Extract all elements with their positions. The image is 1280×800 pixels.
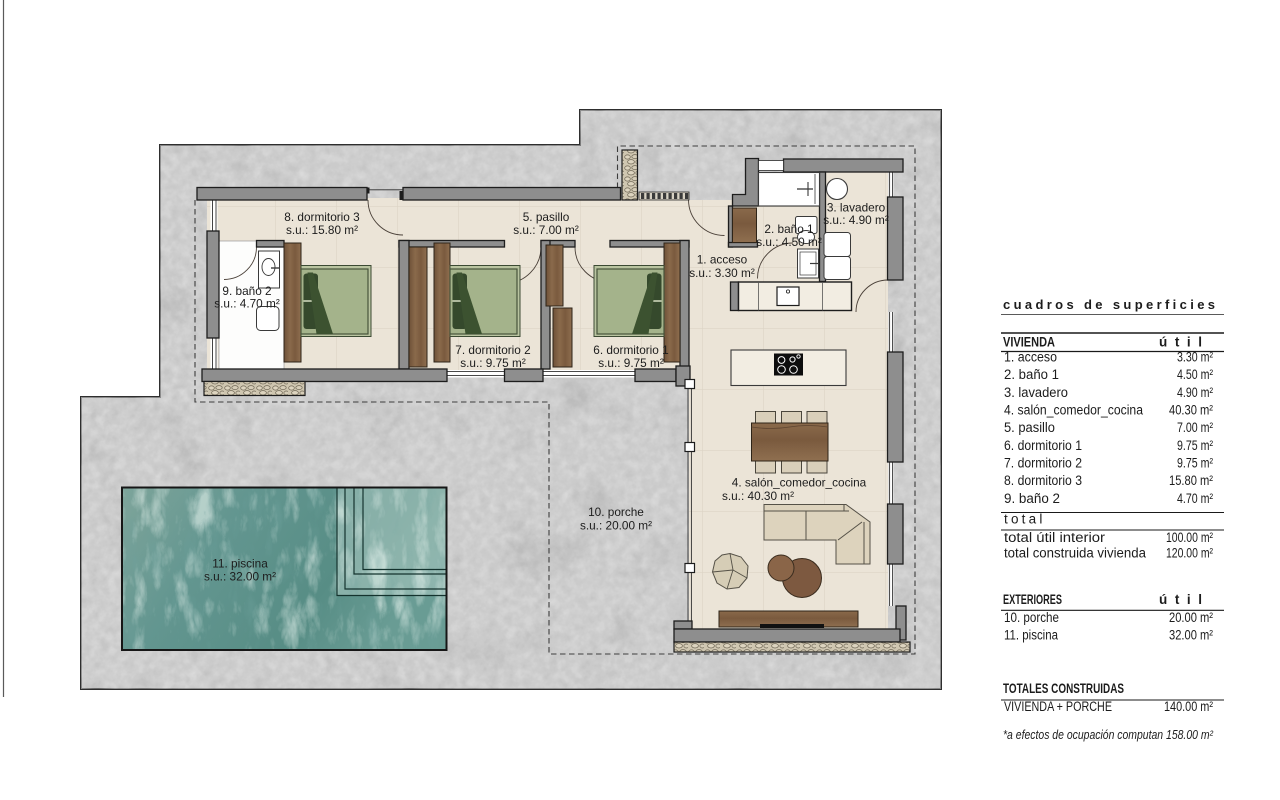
svg-text:s.u.: 3.30 m²: s.u.: 3.30 m²	[689, 266, 755, 280]
svg-text:s.u.: 7.00 m²: s.u.: 7.00 m²	[513, 223, 579, 237]
svg-text:EXTERIORES: EXTERIORES	[1003, 592, 1062, 607]
svg-text:7. dormitorio 2: 7. dormitorio 2	[1004, 456, 1082, 471]
svg-text:cuadros de superficies: cuadros de superficies	[1003, 297, 1219, 312]
svg-text:4. salón_comedor_cocina: 4. salón_comedor_cocina	[732, 476, 867, 490]
svg-text:s.u.: 32.00 m²: s.u.: 32.00 m²	[204, 570, 276, 584]
svg-text:10. porche: 10. porche	[1004, 610, 1059, 625]
svg-text:1. acceso: 1. acceso	[1004, 350, 1057, 365]
svg-text:VIVIENDA: VIVIENDA	[1003, 335, 1055, 350]
svg-text:2. baño 1: 2. baño 1	[764, 222, 813, 236]
svg-text:120.00 m²: 120.00 m²	[1166, 546, 1213, 561]
svg-text:100.00 m²: 100.00 m²	[1166, 530, 1213, 545]
svg-text:32.00 m²: 32.00 m²	[1169, 628, 1213, 643]
svg-text:11. piscina: 11. piscina	[1004, 628, 1058, 643]
svg-text:s.u.: 20.00 m²: s.u.: 20.00 m²	[580, 519, 652, 533]
svg-text:10. porche: 10. porche	[588, 505, 644, 519]
svg-text:40.30 m²: 40.30 m²	[1169, 403, 1213, 418]
svg-text:7.00 m²: 7.00 m²	[1177, 420, 1213, 435]
svg-text:5. pasillo: 5. pasillo	[523, 210, 570, 224]
svg-text:9. baño 2: 9. baño 2	[1004, 491, 1060, 506]
svg-text:9.75 m²: 9.75 m²	[1177, 456, 1213, 471]
svg-text:15.80 m²: 15.80 m²	[1169, 473, 1213, 488]
svg-text:4.90 m²: 4.90 m²	[1177, 385, 1213, 400]
svg-text:TOTALES CONSTRUIDAS: TOTALES CONSTRUIDAS	[1003, 681, 1124, 696]
svg-text:total construida vivienda: total construida vivienda	[1004, 546, 1146, 561]
svg-text:8. dormitorio 3: 8. dormitorio 3	[284, 210, 360, 224]
svg-text:s.u.: 9.75 m²: s.u.: 9.75 m²	[460, 356, 526, 370]
svg-text:s.u.: 4.90 m²: s.u.: 4.90 m²	[823, 213, 889, 227]
svg-text:útil: útil	[1159, 335, 1210, 350]
svg-text:3. lavadero: 3. lavadero	[1004, 385, 1068, 400]
svg-text:4. salón_comedor_cocina: 4. salón_comedor_cocina	[1004, 403, 1143, 418]
svg-text:5. pasillo: 5. pasillo	[1004, 420, 1055, 435]
svg-text:total útil interior: total útil interior	[1004, 530, 1106, 545]
svg-text:total: total	[1004, 512, 1046, 527]
svg-text:s.u.: 4.70 m²: s.u.: 4.70 m²	[214, 297, 280, 311]
svg-text:8. dormitorio 3: 8. dormitorio 3	[1004, 473, 1082, 488]
svg-text:2. baño 1: 2. baño 1	[1004, 367, 1059, 382]
svg-text:*a efectos de ocupación comput: *a efectos de ocupación computan 158.00 …	[1003, 727, 1214, 742]
svg-text:3.30 m²: 3.30 m²	[1177, 350, 1213, 365]
svg-text:4.50 m²: 4.50 m²	[1177, 367, 1213, 382]
svg-text:20.00 m²: 20.00 m²	[1169, 610, 1213, 625]
svg-text:s.u.: 9.75 m²: s.u.: 9.75 m²	[598, 356, 664, 370]
svg-text:s.u.: 15.80 m²: s.u.: 15.80 m²	[286, 223, 358, 237]
svg-text:útil: útil	[1159, 592, 1210, 607]
svg-text:s.u.: 4.50 m²: s.u.: 4.50 m²	[756, 235, 822, 249]
svg-text:s.u.: 40.30 m²: s.u.: 40.30 m²	[722, 489, 794, 503]
svg-text:140.00 m²: 140.00 m²	[1164, 699, 1213, 714]
svg-text:9.75 m²: 9.75 m²	[1177, 438, 1213, 453]
svg-text:VIVIENDA + PORCHE: VIVIENDA + PORCHE	[1004, 699, 1112, 714]
svg-text:1. acceso: 1. acceso	[697, 253, 748, 267]
svg-text:6. dormitorio 1: 6. dormitorio 1	[1004, 438, 1082, 453]
svg-text:11. piscina: 11. piscina	[212, 557, 268, 571]
svg-text:4.70 m²: 4.70 m²	[1177, 491, 1213, 506]
svg-text:7. dormitorio 2: 7. dormitorio 2	[455, 343, 530, 357]
svg-text:6. dormitorio 1: 6. dormitorio 1	[593, 343, 668, 357]
